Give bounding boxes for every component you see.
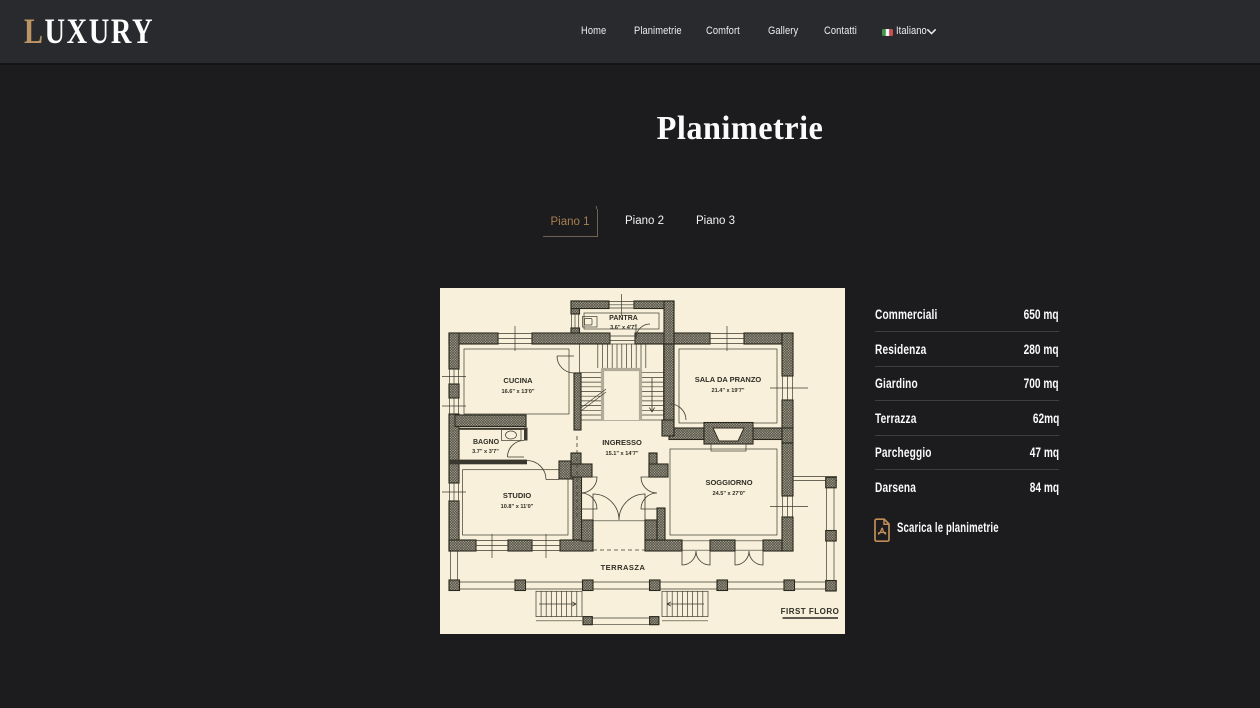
svg-text:SOGGIORNO: SOGGIORNO (705, 478, 752, 487)
svg-text:INGRESSO: INGRESSO (602, 438, 642, 447)
svg-text:24.5" x 27'0": 24.5" x 27'0" (712, 491, 745, 497)
svg-text:CUCINA: CUCINA (503, 376, 533, 385)
svg-text:SALA DA PRANZO: SALA DA PRANZO (695, 375, 762, 384)
svg-text:TERRASZA: TERRASZA (601, 563, 646, 572)
svg-text:STUDIO: STUDIO (503, 491, 532, 500)
svg-text:3.7" x 3'7": 3.7" x 3'7" (472, 449, 499, 455)
svg-text:21.4" x 19'7": 21.4" x 19'7" (711, 388, 744, 394)
svg-text:PANTRA: PANTRA (609, 315, 638, 322)
svg-text:FIRST FLORO: FIRST FLORO (781, 607, 840, 616)
svg-text:BAGNO: BAGNO (473, 439, 500, 446)
svg-text:3.6" x 4'7": 3.6" x 4'7" (610, 325, 637, 331)
svg-text:16.6" x 13'0": 16.6" x 13'0" (501, 389, 534, 395)
svg-text:15.1" x 14'7": 15.1" x 14'7" (605, 451, 638, 457)
svg-text:10.8" x 11'0": 10.8" x 11'0" (501, 504, 534, 510)
